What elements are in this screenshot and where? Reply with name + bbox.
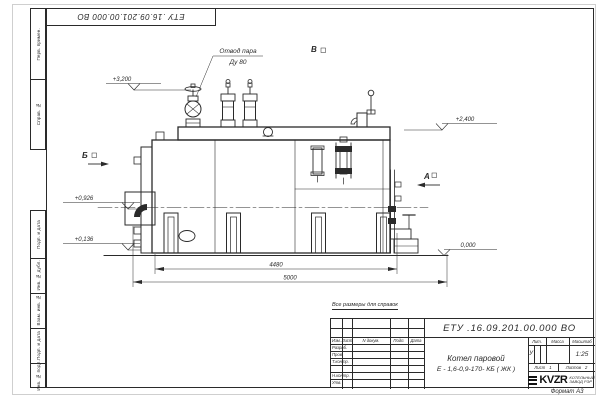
- view-b-label: Б: [82, 151, 88, 160]
- sheet-label: Лист: [534, 365, 545, 370]
- tb-row-nkontr: Н.контр.: [332, 372, 353, 379]
- tb-divider: [331, 365, 424, 366]
- front-plate: [141, 147, 152, 253]
- tb-col-izm: Изм.: [331, 337, 342, 344]
- view-a-ref-box: [432, 173, 437, 178]
- leader-line: [196, 56, 213, 97]
- tb-lit-label: Лит.: [528, 337, 546, 345]
- tb-sheets-cell: Листов 2: [558, 363, 595, 371]
- view-b-ref-box: [92, 153, 97, 158]
- tb-divider: [540, 345, 541, 363]
- tb-divider: [534, 345, 535, 363]
- product-line2: Е - 1,6-0,9-170- КБ ( ЖК ): [437, 366, 515, 373]
- view-v-label: В: [311, 45, 317, 54]
- right-top-valve: [351, 90, 375, 127]
- product-line1: Котел паровой: [447, 354, 504, 363]
- tb-sheet-cell: Лист 1: [528, 363, 558, 371]
- company-logo-text: KVZR: [539, 374, 567, 386]
- kvzr-logo-icon: [528, 376, 537, 385]
- lifting-lug: [156, 132, 164, 140]
- dome-fitting: [264, 128, 273, 137]
- reference-note: Все размеры для справок: [332, 302, 398, 308]
- tb-company-cell: KVZR КОТЕЛЬНЫЙ ЗАВОД РЭР: [528, 371, 595, 389]
- boiler-outline: [98, 80, 448, 256]
- tb-designation: ЕТУ .16.09.201.00.000 ВО: [424, 319, 595, 337]
- view-v-ref-box: [321, 48, 326, 53]
- tb-divider: [331, 328, 424, 329]
- tb-col-docum: N докум.: [352, 337, 390, 344]
- elevation-marks: +3,200 +2,400 +0,926 +0,136 0,000: [63, 77, 497, 256]
- format-label: Формат А3: [538, 389, 596, 395]
- tb-col-list: Лист: [342, 337, 352, 344]
- sheets-value: 2: [585, 365, 587, 370]
- drawing-sheet: ЕТУ .16.09.201.00.000 ВО Перв. примен. С…: [0, 0, 600, 400]
- dimension-lines: 4480 5000: [133, 226, 447, 287]
- tb-mass-label: Масса: [546, 337, 569, 345]
- elev-0136: +0,136: [75, 237, 94, 243]
- boiler-body: [152, 140, 390, 253]
- tb-scale-value: 1:25: [569, 345, 595, 363]
- tb-row-prov: Пров.: [332, 351, 353, 358]
- sheets-label: Листов: [566, 365, 581, 370]
- elev-3200: +3,200: [113, 77, 132, 83]
- dim-5000: 5000: [283, 276, 297, 282]
- tb-scale-label: Масштаб: [569, 337, 595, 345]
- elev-2400: +2,400: [456, 117, 475, 123]
- level-gauge-2: [335, 137, 352, 184]
- manhole: [179, 231, 195, 242]
- steam-outlet-dn: Ду 80: [229, 59, 247, 66]
- safety-valve-2: [243, 80, 257, 128]
- elev-0000: 0,000: [460, 243, 476, 249]
- company-subtitle: КОТЕЛЬНЫЙ ЗАВОД РЭР: [569, 376, 594, 385]
- annotations: Отвод пара Ду 80 В Б А +3,200 +2,400 +0,…: [63, 45, 497, 287]
- level-gauge-1: [311, 146, 324, 182]
- safety-valve-1: [221, 80, 235, 128]
- elev-0926: +0,926: [75, 196, 94, 202]
- title-block: ЕТУ .16.09.201.00.000 ВО Изм. Лист N док…: [330, 318, 594, 388]
- sheet-value: 1: [549, 365, 551, 370]
- view-a-label: А: [423, 172, 430, 181]
- tb-row-razrab: Разраб.: [332, 344, 353, 351]
- support-legs: [164, 213, 391, 253]
- tb-row-tkontr: Т.контр.: [332, 358, 353, 365]
- tb-col-podp: Подп.: [390, 337, 408, 344]
- top-platform: [178, 127, 390, 140]
- tb-col-data: Дата: [408, 337, 424, 344]
- tb-product-name: Котел паровой Е - 1,6-0,9-170- КБ ( ЖК ): [424, 337, 528, 389]
- steam-outlet-label: Отвод пара: [219, 47, 257, 55]
- tb-row-utv: Утв.: [332, 379, 353, 386]
- dim-4480: 4480: [269, 263, 283, 269]
- tb-lit-value: У: [528, 345, 534, 363]
